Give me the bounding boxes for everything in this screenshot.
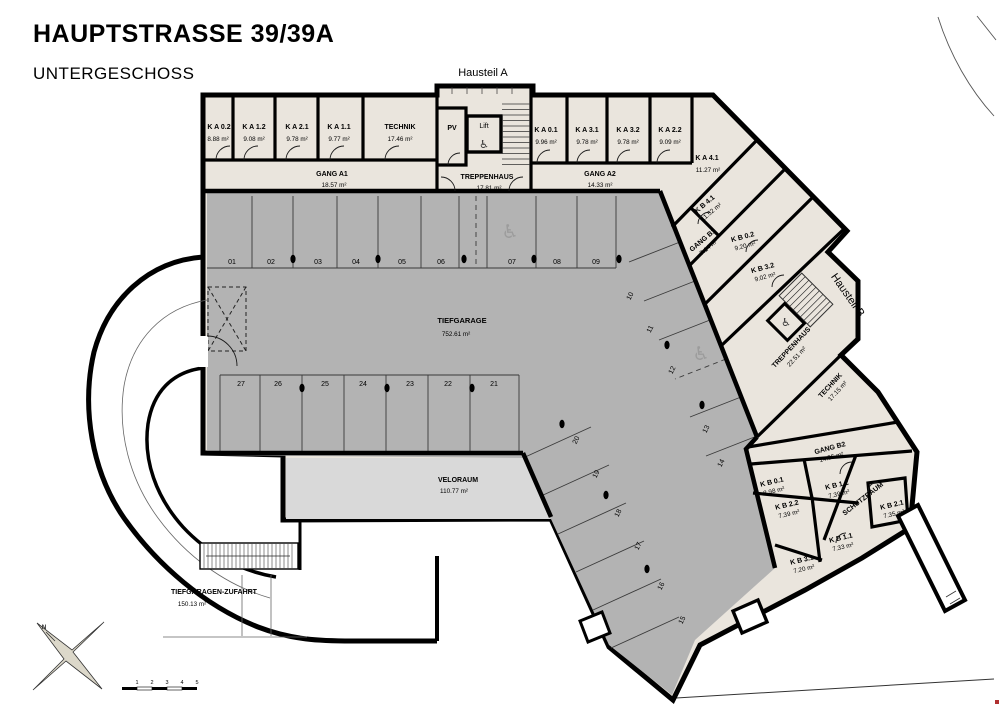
room-label: K A 0.2 (207, 124, 230, 131)
room-area: 18.57 m² (322, 182, 347, 189)
north-label: N (42, 624, 47, 631)
page-subtitle: UNTERGESCHOSS (33, 64, 194, 83)
room-label: K A 3.1 (575, 127, 598, 134)
parking-spot: 26 (274, 381, 282, 388)
garage-door-gap (199, 336, 208, 367)
scale-tick: 5 (195, 680, 198, 686)
parking-spot: 22 (444, 381, 452, 388)
room-area: 9.08 m² (243, 136, 264, 143)
scale-bar: 1 2 3 4 5 (122, 680, 199, 690)
wheelchair-icon: ♿ (479, 138, 489, 151)
room-area: 17.81 m² (477, 185, 502, 192)
room-area: 8.88 m² (207, 136, 228, 143)
room-area: 9.96 m² (535, 139, 556, 146)
floorplan-drawing: HAUPTSTRASSE 39/39A UNTERGESCHOSS Hauste… (0, 0, 1000, 706)
room-area: 9.78 m² (617, 139, 638, 146)
scale-tick: 3 (165, 680, 168, 686)
parking-spot: 05 (398, 259, 406, 266)
parking-spot: 23 (406, 381, 414, 388)
room-area: 17.46 m² (388, 136, 413, 143)
survey-mark (995, 700, 999, 704)
veloraum-area (286, 458, 551, 519)
room-area: 14.33 m² (588, 182, 613, 189)
parking-spot: 25 (321, 381, 329, 388)
room-area: 9.78 m² (286, 136, 307, 143)
lift-a-label: Lift (479, 123, 488, 130)
scale-tick: 1 (135, 680, 138, 686)
ramp-stairs (200, 543, 298, 569)
room-area: 9.77 m² (328, 136, 349, 143)
parking-spot: 07 (508, 259, 516, 266)
wheelchair-icon: ♿ (781, 316, 791, 329)
parking-spot: 27 (237, 381, 245, 388)
room-label: K A 4.1 (695, 155, 718, 162)
room-label: K A 2.1 (285, 124, 308, 131)
hausteil-a-label: Hausteil A (458, 67, 508, 79)
parking-spot: 24 (359, 381, 367, 388)
garage-label: TIEFGARAGE (437, 316, 486, 325)
floorplan-page: HAUPTSTRASSE 39/39A UNTERGESCHOSS Hauste… (0, 0, 1000, 706)
veloraum-area-label: 110.77 m² (440, 488, 468, 495)
zufahrt-area-label: 150.13 m² (178, 601, 206, 608)
garage-area-label: 752.61 m² (442, 331, 470, 338)
parking-spot: 02 (267, 259, 275, 266)
room-label: TECHNIK (384, 124, 415, 131)
room-label: K A 3.2 (616, 127, 639, 134)
parking-spot: 21 (490, 381, 498, 388)
room-area: 9.78 m² (576, 139, 597, 146)
room-label: GANG A1 (316, 171, 348, 178)
wheelchair-icon: ♿ (692, 343, 709, 365)
parking-spot: 08 (553, 259, 561, 266)
page-title: HAUPTSTRASSE 39/39A (33, 20, 334, 48)
veloraum-label: VELORAUM (438, 477, 478, 484)
parking-spot: 01 (228, 259, 236, 266)
room-label: K A 0.1 (534, 127, 557, 134)
room-label: PV (447, 125, 457, 132)
wheelchair-icon: ♿ (501, 221, 518, 243)
parking-spot: 06 (437, 259, 445, 266)
room-label: TREPPENHAUS (461, 174, 514, 181)
zufahrt-label: TIEFGARAGEN-ZUFAHRT (171, 589, 258, 596)
scale-tick: 4 (180, 680, 183, 686)
room-area: 9.09 m² (659, 139, 680, 146)
parking-spot: 03 (314, 259, 322, 266)
emergency-exit-tunnel (898, 505, 965, 611)
compass-rose: N (33, 622, 104, 690)
room-label: K A 1.1 (327, 124, 350, 131)
parking-spot: 09 (592, 259, 600, 266)
room-label: K A 1.2 (242, 124, 265, 131)
parking-spot: 04 (352, 259, 360, 266)
room-area: 11.27 m² (696, 167, 720, 174)
room-label: GANG A2 (584, 171, 616, 178)
scale-tick: 2 (150, 680, 153, 686)
room-label: K A 2.2 (658, 127, 681, 134)
